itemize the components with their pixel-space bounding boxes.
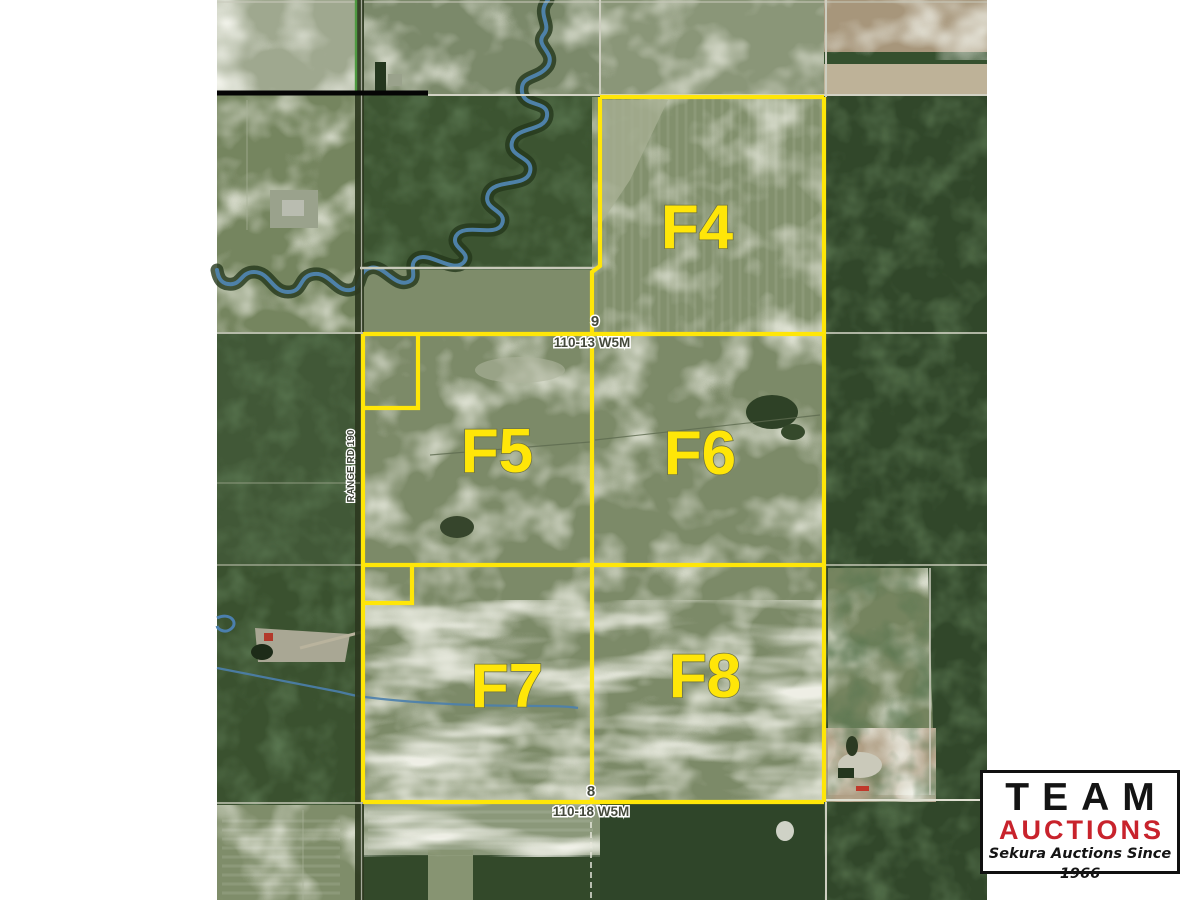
section-number-top: 9 (591, 313, 599, 330)
parcel-label-f5: F5 (461, 417, 533, 486)
range-road-label: RANGE RD 190 (346, 429, 357, 502)
township-label-top: 110-13 W5M (554, 335, 631, 350)
township-label-bottom: 110-18 W5M (553, 804, 630, 819)
parcel-label-f6: F6 (664, 419, 736, 488)
auction-map-page: F4 F5 F6 F7 F8 9 110-13 W5M 8 110-18 W5M… (0, 0, 1200, 900)
parcel-label-f4: F4 (661, 193, 734, 262)
satellite-map: F4 F5 F6 F7 F8 9 110-13 W5M 8 110-18 W5M… (0, 0, 1200, 900)
logo-title: TEAM (983, 780, 1177, 816)
logo-tagline: Sekura Auctions Since 1966 (983, 844, 1177, 884)
parcel-label-f7: F7 (471, 652, 543, 721)
team-auctions-logo: TEAM AUCTIONS Sekura Auctions Since 1966 (980, 770, 1180, 874)
parcel-label-f8: F8 (669, 642, 741, 711)
section-number-bottom: 8 (587, 783, 595, 800)
logo-subtitle: AUCTIONS (983, 816, 1177, 844)
